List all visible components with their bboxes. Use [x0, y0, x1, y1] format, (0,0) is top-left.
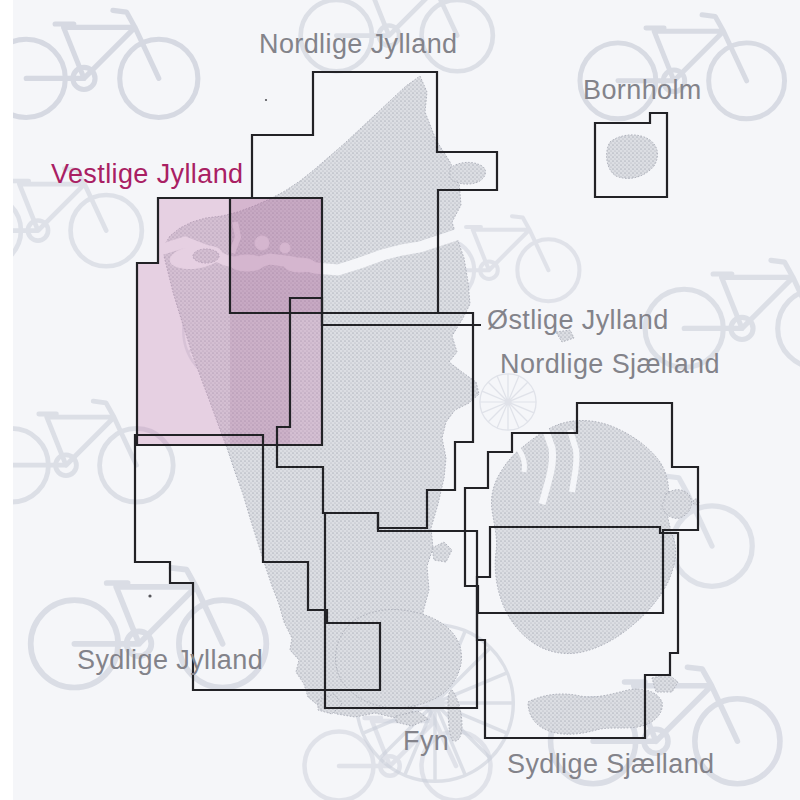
land-laesoe: [450, 162, 485, 184]
region-label-fyn: Fyn: [403, 726, 449, 757]
map-index-page: Nordlige Jylland Bornholm Vestlige Jylla…: [0, 0, 800, 800]
highlight-overlap-tint: [230, 199, 322, 313]
region-label-vestlige-jylland: Vestlige Jylland: [51, 159, 244, 190]
region-label-sydlige-sjaelland: Sydlige Sjælland: [507, 749, 715, 780]
bicycle-wheel-icon: [480, 374, 536, 430]
scan-page-margin: [0, 0, 13, 800]
region-label-oestlige-jylland: Østlige Jylland: [487, 305, 669, 336]
region-label-bornholm: Bornholm: [583, 75, 702, 106]
region-label-nordlige-jylland: Nordlige Jylland: [259, 29, 458, 60]
denmark-map-svg: [0, 0, 800, 800]
land-funen: [336, 610, 462, 708]
region-label-sydlige-jylland: Sydlige Jylland: [77, 645, 263, 676]
highlight-overlap-tint: [230, 313, 290, 444]
region-label-nordlige-sjaelland: Nordlige Sjælland: [500, 349, 720, 380]
